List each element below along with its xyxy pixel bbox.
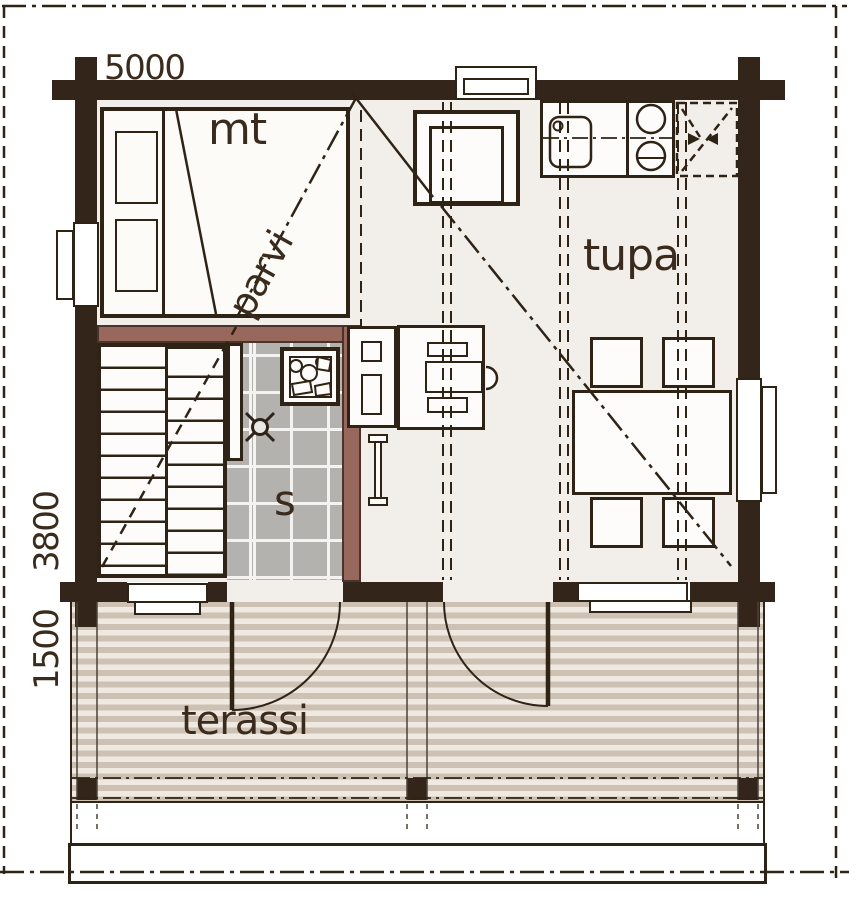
- window-right: [736, 378, 762, 502]
- window-right-sill: [761, 386, 777, 494]
- dining-chair: [590, 337, 643, 388]
- fireplace-hearth: [429, 126, 504, 204]
- window-bottom-right-sill: [589, 600, 692, 613]
- window-left: [73, 222, 99, 307]
- dining-chair: [662, 337, 715, 388]
- terrace-ground-strip: [70, 803, 765, 843]
- window-bottom-right: [577, 582, 688, 602]
- mattress: [115, 131, 158, 204]
- dining-chair: [662, 497, 715, 548]
- mattress: [115, 219, 158, 292]
- loft-stairs-treads: [101, 347, 165, 574]
- label-sauna: s: [274, 480, 295, 522]
- loft-stairs-treads: [165, 347, 223, 574]
- terrace-post: [77, 778, 97, 800]
- desk-chair: [425, 361, 483, 393]
- wall-bottom-segment: [343, 582, 443, 602]
- window-left-sill: [56, 230, 74, 300]
- kitchen-counter: [540, 100, 675, 178]
- dim-depth-terrace: 1500: [30, 609, 64, 690]
- terrace-deck: [70, 601, 765, 803]
- cabinet-door: [361, 374, 382, 415]
- sauna-heater-inner: [289, 356, 332, 398]
- window-top-pane: [463, 78, 529, 95]
- cabinet-drawer: [361, 341, 382, 362]
- terrace-post: [738, 778, 758, 800]
- dining-chair: [590, 497, 643, 548]
- label-bedroom: mt: [208, 108, 266, 152]
- terrace-step-slab: [68, 843, 767, 884]
- wall-bottom-segment: [208, 582, 227, 602]
- stool: [368, 497, 388, 506]
- dining-table: [572, 390, 732, 495]
- terrace-post: [407, 778, 427, 800]
- door-threshold: [227, 582, 343, 602]
- window-bottom-left-sill: [134, 601, 201, 615]
- wall-right: [738, 57, 760, 627]
- desk-item: [427, 397, 468, 413]
- wall-bottom-segment: [690, 582, 775, 602]
- stool: [374, 441, 382, 499]
- wall-bottom-segment: [60, 582, 127, 602]
- sauna-door-panel: [227, 343, 243, 461]
- window-bottom-left: [127, 583, 208, 603]
- dim-width: 5000: [104, 51, 185, 85]
- kitchen-counter-divider: [626, 102, 629, 176]
- wall-left: [75, 57, 97, 627]
- label-living: tupa: [583, 234, 679, 278]
- label-terrace: terassi: [181, 701, 308, 741]
- floor-plan-canvas: 5000 3800 1500 mt parvi tupa s terassi: [0, 0, 849, 900]
- desk-item: [427, 342, 468, 357]
- wall-bottom-segment: [553, 582, 578, 602]
- dim-depth-main: 3800: [30, 491, 64, 572]
- door-threshold: [443, 582, 553, 602]
- sauna-wall-top: [97, 325, 345, 343]
